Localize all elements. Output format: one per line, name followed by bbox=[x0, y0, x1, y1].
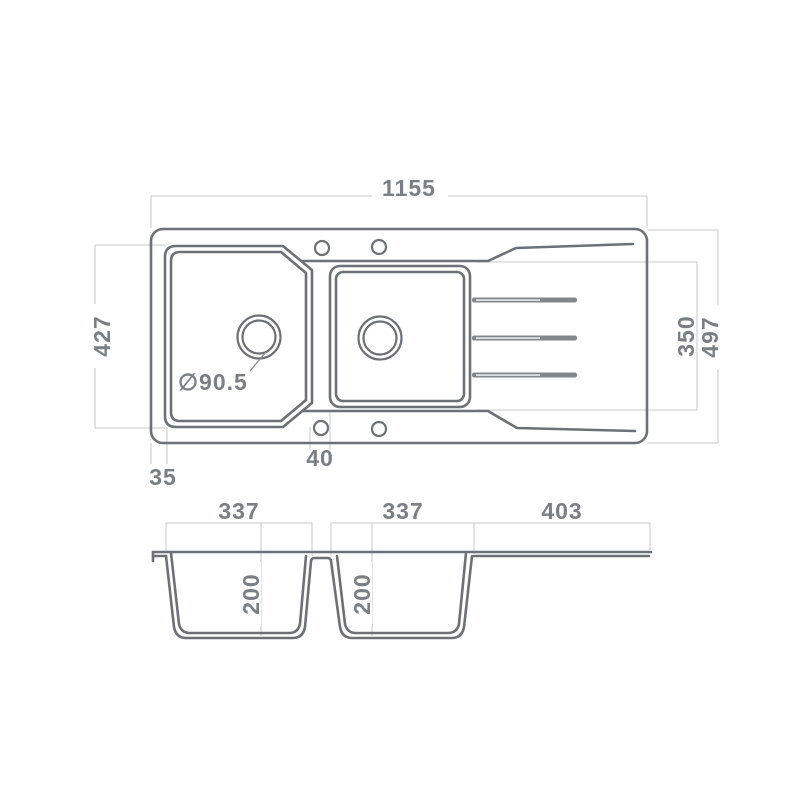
dimension-lines-top-view bbox=[95, 196, 718, 464]
drain-diameter-leader-line bbox=[250, 352, 266, 371]
bowl1-width-label: 337 bbox=[218, 498, 259, 524]
divider-width-label: 40 bbox=[306, 445, 334, 471]
overall-depth-label: 497 bbox=[697, 316, 723, 357]
tap-hole-top-right bbox=[372, 240, 386, 254]
overall-width-label: 1155 bbox=[382, 175, 436, 201]
bowl1-depth-label: 200 bbox=[238, 573, 264, 614]
sink-section-view bbox=[153, 552, 651, 638]
tap-hole-bottom-right bbox=[372, 422, 386, 436]
drawing-svg: 1155 427 350 497 35 40 ∅90.5 337 337 403… bbox=[0, 0, 800, 800]
drain-diameter-label: ∅90.5 bbox=[178, 369, 248, 395]
tap-hole-top-left bbox=[315, 241, 329, 255]
dimension-labels: 1155 427 350 497 35 40 ∅90.5 337 337 403… bbox=[89, 175, 723, 615]
drainer-ribs bbox=[472, 298, 577, 378]
drainer-deck-bottom-edge bbox=[302, 411, 635, 431]
left-edge-offset-label: 35 bbox=[149, 464, 177, 490]
bowl-depth-label: 427 bbox=[89, 315, 115, 356]
drainer-rib-1 bbox=[472, 298, 577, 303]
drainer-depth-label: 350 bbox=[673, 315, 699, 356]
bowl2-depth-label: 200 bbox=[349, 573, 375, 614]
drainer-rib-2 bbox=[472, 336, 577, 341]
sink-top-view bbox=[151, 229, 647, 443]
drainer-rib-3 bbox=[472, 373, 577, 378]
left-bowl-drain bbox=[238, 316, 281, 359]
centre-bowl-outer-outline bbox=[330, 266, 470, 407]
drainer-deck-top-edge bbox=[302, 244, 633, 261]
tap-hole-bottom-left bbox=[314, 421, 328, 435]
centre-bowl-inner-outline bbox=[336, 272, 464, 401]
centre-bowl-drain bbox=[359, 317, 402, 360]
drainer-width-label: 403 bbox=[541, 498, 582, 524]
bowl2-width-label: 337 bbox=[382, 498, 423, 524]
section-bowls-outer-surface bbox=[166, 556, 472, 638]
sink-technical-drawing: 1155 427 350 497 35 40 ∅90.5 337 337 403… bbox=[0, 0, 800, 800]
